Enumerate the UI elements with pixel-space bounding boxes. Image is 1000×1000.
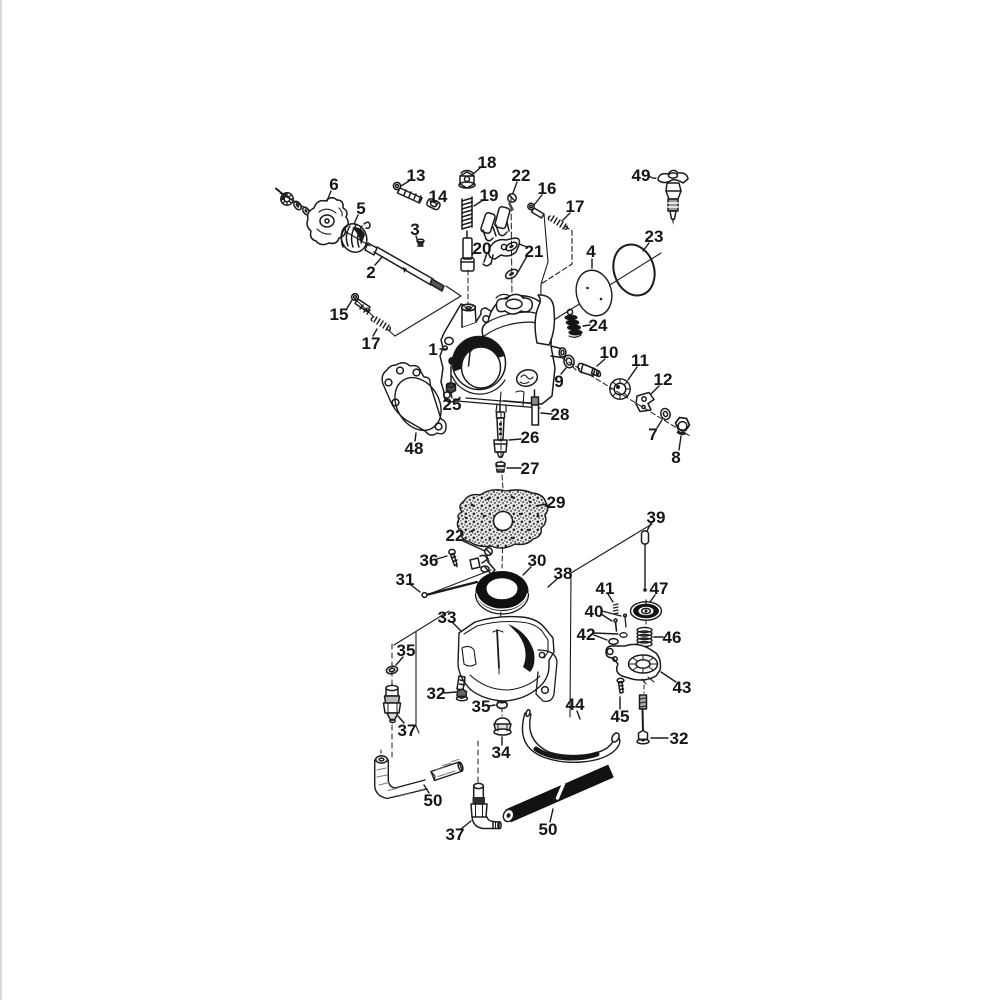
- svg-text:25: 25: [443, 395, 462, 414]
- svg-text:37: 37: [398, 721, 417, 740]
- svg-text:32: 32: [427, 684, 446, 703]
- svg-text:15: 15: [330, 305, 349, 324]
- svg-text:40: 40: [585, 602, 604, 621]
- svg-text:37: 37: [446, 825, 465, 844]
- svg-text:1: 1: [428, 340, 437, 359]
- svg-text:11: 11: [631, 351, 649, 370]
- svg-text:44: 44: [566, 695, 585, 714]
- svg-text:7: 7: [648, 425, 657, 444]
- svg-text:46: 46: [663, 628, 682, 647]
- svg-text:36: 36: [420, 551, 439, 570]
- svg-text:2: 2: [366, 263, 375, 282]
- svg-text:47: 47: [650, 579, 669, 598]
- svg-text:13: 13: [407, 166, 426, 185]
- svg-text:9: 9: [554, 372, 563, 391]
- svg-text:50: 50: [424, 791, 443, 810]
- svg-text:14: 14: [429, 187, 448, 206]
- svg-text:19: 19: [480, 186, 499, 205]
- svg-text:27: 27: [521, 459, 540, 478]
- svg-text:22: 22: [446, 526, 465, 545]
- svg-text:35: 35: [397, 641, 416, 660]
- svg-text:4: 4: [586, 242, 596, 261]
- svg-text:17: 17: [362, 334, 381, 353]
- svg-text:33: 33: [438, 608, 457, 627]
- svg-text:12: 12: [654, 370, 673, 389]
- svg-text:18: 18: [478, 153, 497, 172]
- svg-text:35: 35: [472, 697, 491, 716]
- svg-text:41: 41: [596, 579, 615, 598]
- svg-text:50: 50: [539, 820, 558, 839]
- svg-text:48: 48: [405, 439, 424, 458]
- svg-text:30: 30: [528, 551, 547, 570]
- svg-text:28: 28: [551, 405, 570, 424]
- svg-text:24: 24: [589, 316, 608, 335]
- svg-text:49: 49: [632, 166, 651, 185]
- svg-text:10: 10: [600, 343, 619, 362]
- svg-text:39: 39: [647, 508, 666, 527]
- svg-text:3: 3: [410, 220, 419, 239]
- svg-text:16: 16: [538, 179, 557, 198]
- svg-text:17: 17: [566, 197, 585, 216]
- svg-text:45: 45: [611, 707, 630, 726]
- svg-text:38: 38: [554, 564, 573, 583]
- svg-text:8: 8: [671, 448, 680, 467]
- svg-text:6: 6: [329, 175, 338, 194]
- svg-text:21: 21: [525, 242, 544, 261]
- svg-text:5: 5: [356, 199, 365, 218]
- svg-text:34: 34: [492, 743, 511, 762]
- svg-text:42: 42: [577, 625, 596, 644]
- svg-text:43: 43: [673, 678, 692, 697]
- svg-text:20: 20: [473, 239, 492, 258]
- svg-text:22: 22: [512, 166, 531, 185]
- svg-text:32: 32: [670, 729, 689, 748]
- svg-text:29: 29: [547, 493, 566, 512]
- svg-text:31: 31: [396, 570, 415, 589]
- svg-text:26: 26: [521, 428, 540, 447]
- svg-text:23: 23: [645, 227, 664, 246]
